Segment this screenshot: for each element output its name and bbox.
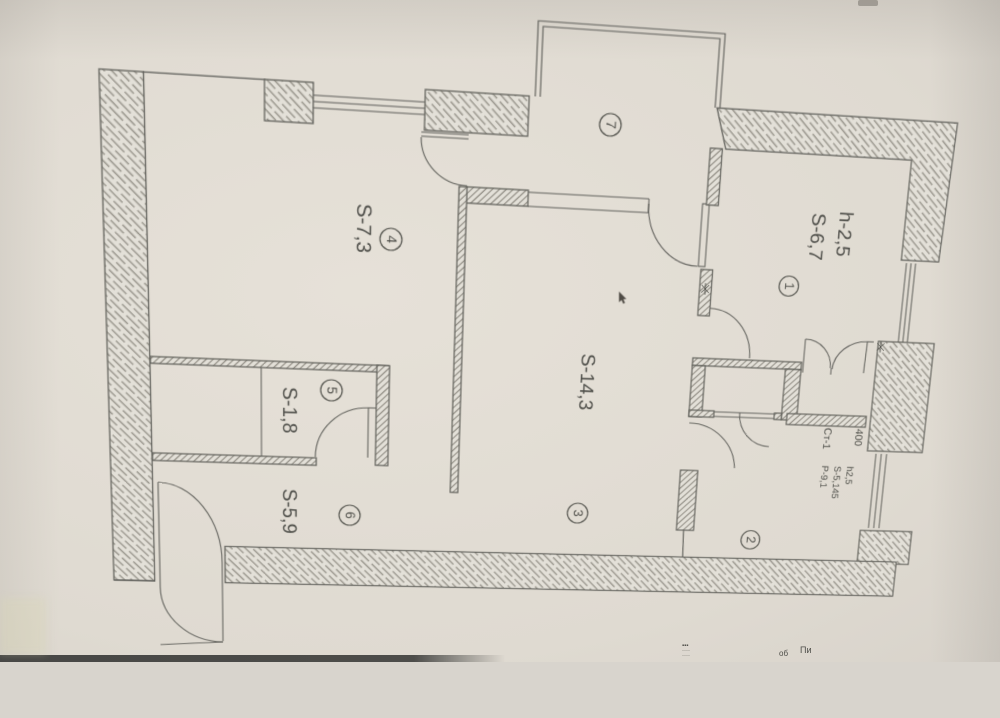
svg-text:об: об [779,649,788,658]
svg-text:h-2,5: h-2,5 [832,211,858,257]
svg-text:····: ···· [682,653,690,659]
svg-text:S-14,3: S-14,3 [575,353,600,411]
svg-text:Пи: Пи [800,645,812,655]
svg-text:5: 5 [324,386,339,394]
svg-text:2: 2 [743,536,757,543]
svg-text:S-5,9: S-5,9 [279,488,302,534]
svg-text:P-9,1: P-9,1 [818,465,830,488]
svg-text:3: 3 [570,509,584,517]
svg-text:7: 7 [603,120,618,129]
svg-text:S-1,8: S-1,8 [279,386,302,433]
svg-text:Ст-1: Ст-1 [820,428,834,450]
svg-text:6: 6 [342,511,357,519]
svg-text:S-6,7: S-6,7 [805,212,831,261]
svg-text:S-5,145: S-5,145 [829,466,842,499]
svg-text:h2,5: h2,5 [843,466,855,485]
svg-text:400: 400 [852,429,866,447]
svg-text:4: 4 [383,235,398,244]
svg-text:S-7,3: S-7,3 [352,203,376,253]
svg-text:1: 1 [781,282,796,290]
